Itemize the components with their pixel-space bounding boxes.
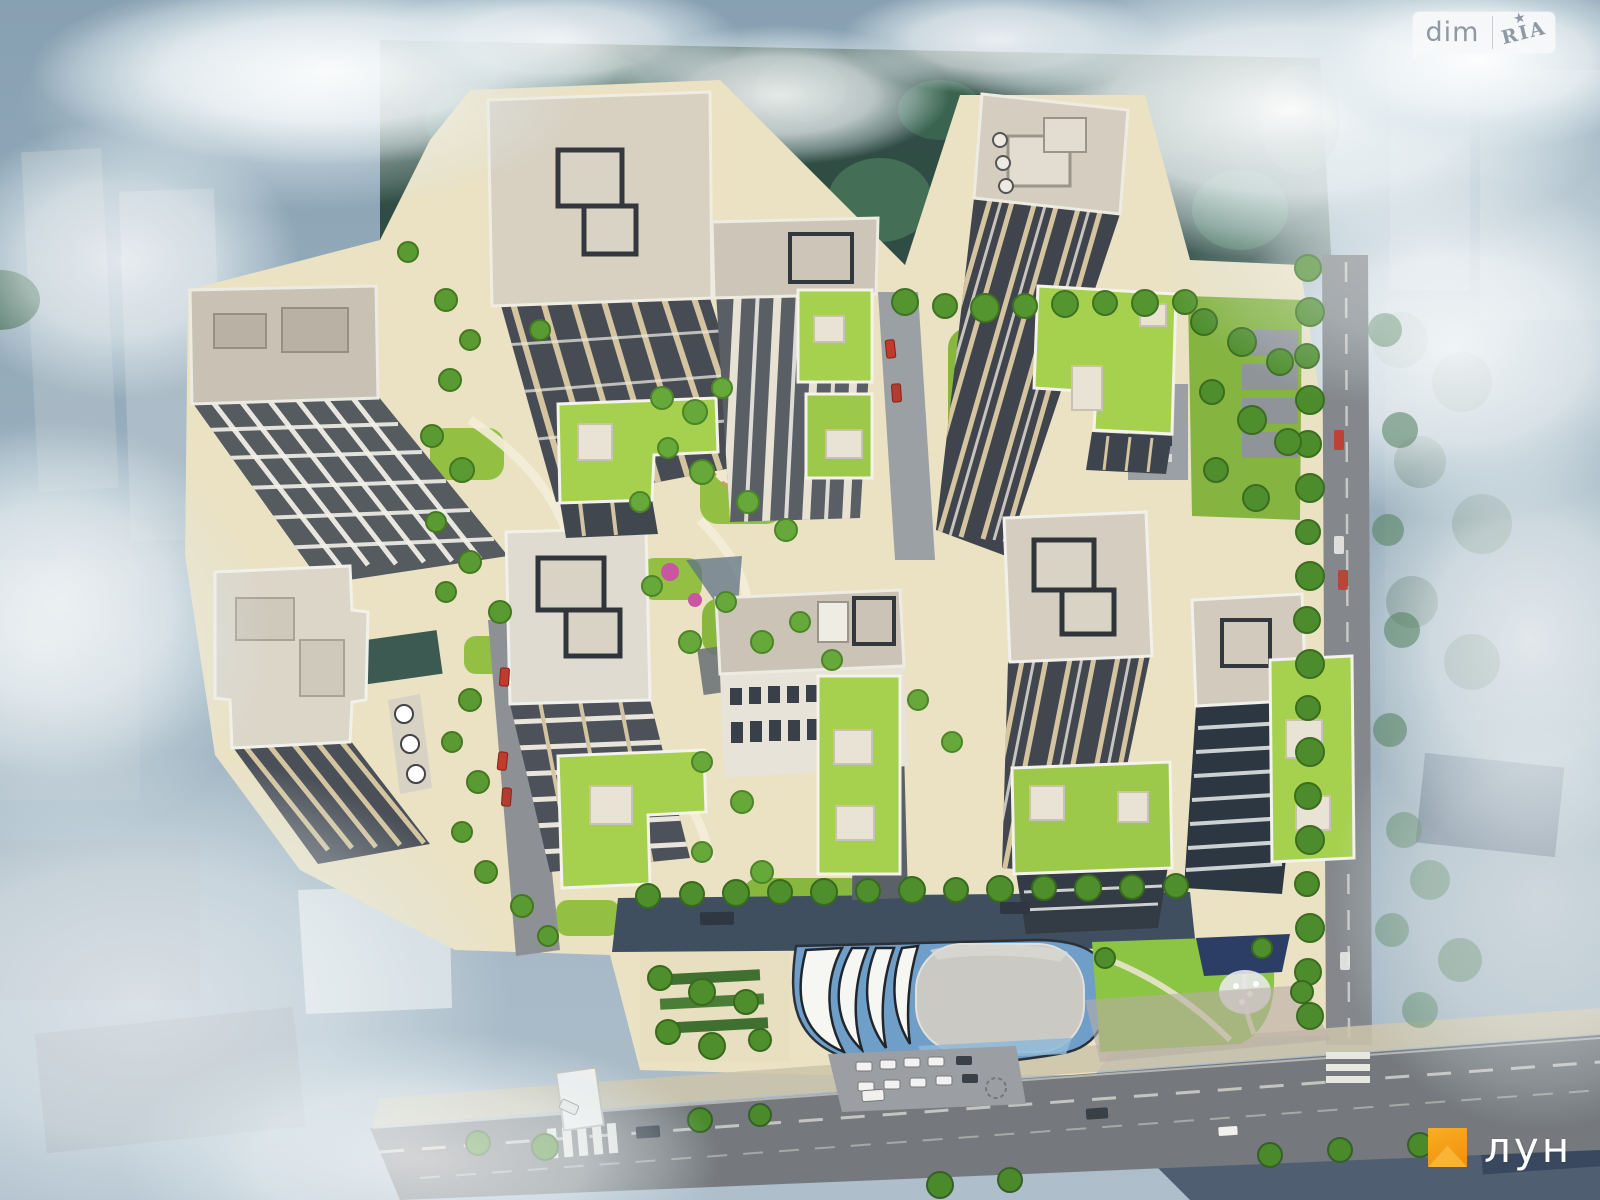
lun-watermark: лун xyxy=(1428,1128,1572,1167)
dim-ria-watermark: dim ★RIA xyxy=(1413,12,1555,53)
mall-building xyxy=(793,940,1108,1065)
aerial-render-screenshot: dim ★RIA лун xyxy=(0,0,1600,1200)
green-roof-building-southeast xyxy=(1012,762,1172,934)
ria-logo: ★RIA xyxy=(1491,14,1556,50)
aerial-render-scene xyxy=(0,0,1600,1200)
crosswalk-east xyxy=(1326,1052,1370,1083)
dim-logo: dim xyxy=(1413,12,1492,53)
entrance-canopy xyxy=(1196,934,1290,976)
playground xyxy=(661,563,679,581)
parking-south xyxy=(828,1046,1026,1112)
lun-logo-text: лун xyxy=(1484,1128,1572,1167)
lun-logo-square-icon xyxy=(1428,1128,1467,1167)
green-roof-building-south-center xyxy=(818,676,900,874)
